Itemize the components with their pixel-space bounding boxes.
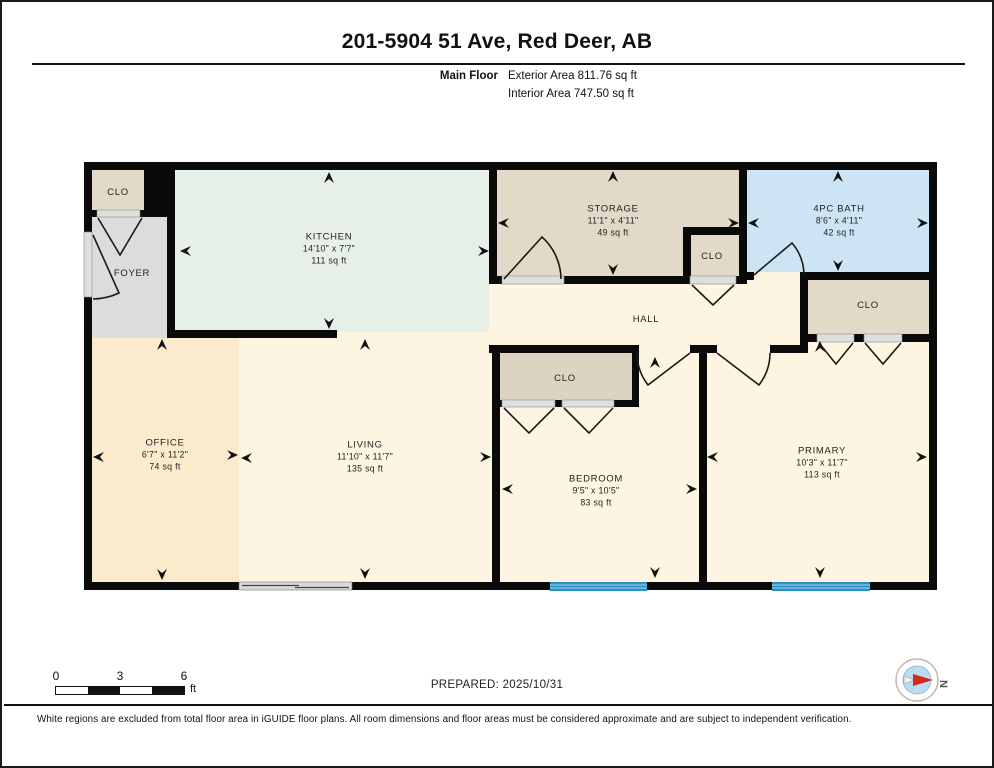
room-label-foyer: FOYER (114, 268, 150, 280)
primary-window (772, 582, 870, 591)
room-label-kitchen: KITCHEN 14'10" x 7'7" 111 sq ft (303, 231, 355, 266)
storage-area: 49 sq ft (587, 227, 638, 238)
room-label-entry-closet: CLO (107, 187, 129, 199)
primary-closet-name: CLO (857, 300, 879, 312)
storage-name: STORAGE (587, 203, 638, 215)
bedroom-window (550, 582, 647, 591)
bedroom-area: 83 sq ft (569, 497, 623, 508)
bath-name: 4PC BATH (813, 203, 864, 215)
office-dims: 6'7" x 11'2" (142, 450, 188, 461)
office-name: OFFICE (142, 437, 188, 449)
room-label-bath: 4PC BATH 8'6" x 4'11" 42 sq ft (813, 203, 864, 238)
disclaimer-text: White regions are excluded from total fl… (37, 714, 851, 725)
room-label-hall-closet: CLO (701, 251, 723, 263)
room-label-office: OFFICE 6'7" x 11'2" 74 sq ft (142, 437, 188, 472)
hall-closet-name: CLO (701, 251, 723, 263)
entry-closet-name: CLO (107, 187, 129, 199)
primary-area: 113 sq ft (796, 469, 848, 480)
footer-divider (4, 704, 992, 706)
kitchen-name: KITCHEN (303, 231, 355, 243)
room-label-primary-closet: CLO (857, 300, 879, 312)
room-label-storage: STORAGE 11'1" x 4'11" 49 sq ft (587, 203, 638, 238)
primary-dims: 10'3" x 11'7" (796, 458, 848, 469)
kitchen-dims: 14'10" x 7'7" (303, 244, 355, 255)
foyer-name: FOYER (114, 268, 150, 280)
room-label-primary: PRIMARY 10'3" x 11'7" 113 sq ft (796, 445, 848, 480)
room-label-bedroom-closet: CLO (554, 373, 576, 385)
office-area: 74 sq ft (142, 461, 188, 472)
bedroom-dims: 9'5" x 10'5" (569, 486, 623, 497)
living-name: LIVING (337, 439, 393, 451)
bedroom-closet-name: CLO (554, 373, 576, 385)
prepared-date: PREPARED: 2025/10/31 (2, 679, 992, 691)
primary-name: PRIMARY (796, 445, 848, 457)
floor-plan-page: 201-5904 51 Ave, Red Deer, AB Main Floor… (0, 0, 994, 768)
kitchen-area: 111 sq ft (303, 255, 355, 266)
living-dims: 11'10" x 11'7" (337, 452, 393, 463)
compass-icon: N (895, 656, 965, 704)
storage-dims: 11'1" x 4'11" (587, 216, 638, 227)
room-label-bedroom: BEDROOM 9'5" x 10'5" 83 sq ft (569, 473, 623, 508)
compass-north-label: N (937, 680, 949, 688)
bedroom-name: BEDROOM (569, 473, 623, 485)
bath-dims: 8'6" x 4'11" (813, 216, 864, 227)
room-label-living: LIVING 11'10" x 11'7" 135 sq ft (337, 439, 393, 474)
living-area: 135 sq ft (337, 463, 393, 474)
floor-plan-drawing (2, 2, 994, 768)
room-label-hall: HALL (633, 314, 660, 326)
hall-name: HALL (633, 314, 660, 326)
room-fills (92, 170, 929, 582)
bath-area: 42 sq ft (813, 227, 864, 238)
sliding-door (239, 582, 352, 590)
